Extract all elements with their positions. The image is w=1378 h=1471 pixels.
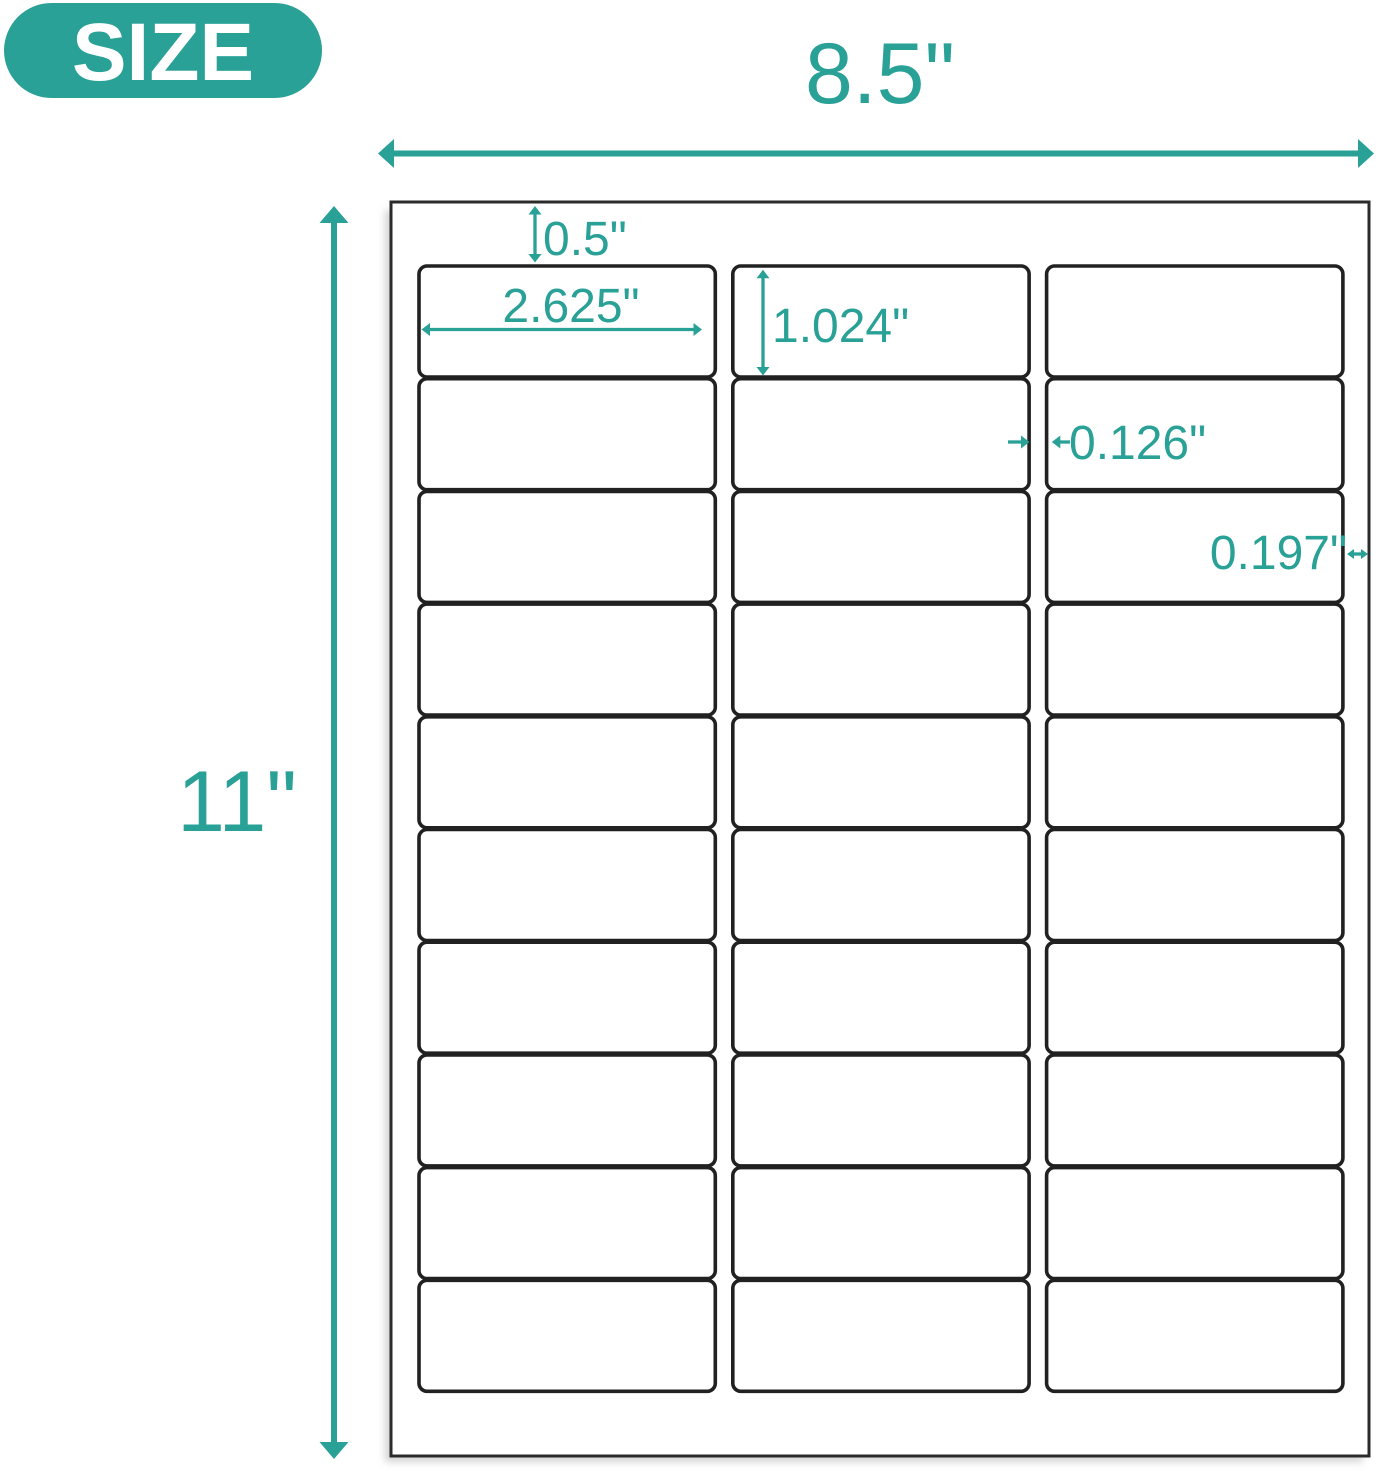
- svg-text:11": 11": [177, 754, 297, 850]
- svg-text:SIZE: SIZE: [72, 7, 254, 98]
- svg-text:0.5": 0.5": [543, 213, 627, 266]
- svg-text:2.625": 2.625": [502, 280, 639, 333]
- svg-text:0.197": 0.197": [1210, 527, 1347, 580]
- svg-text:1.024": 1.024": [772, 300, 909, 353]
- svg-text:0.126": 0.126": [1069, 417, 1206, 470]
- svg-text:8.5": 8.5": [805, 26, 955, 122]
